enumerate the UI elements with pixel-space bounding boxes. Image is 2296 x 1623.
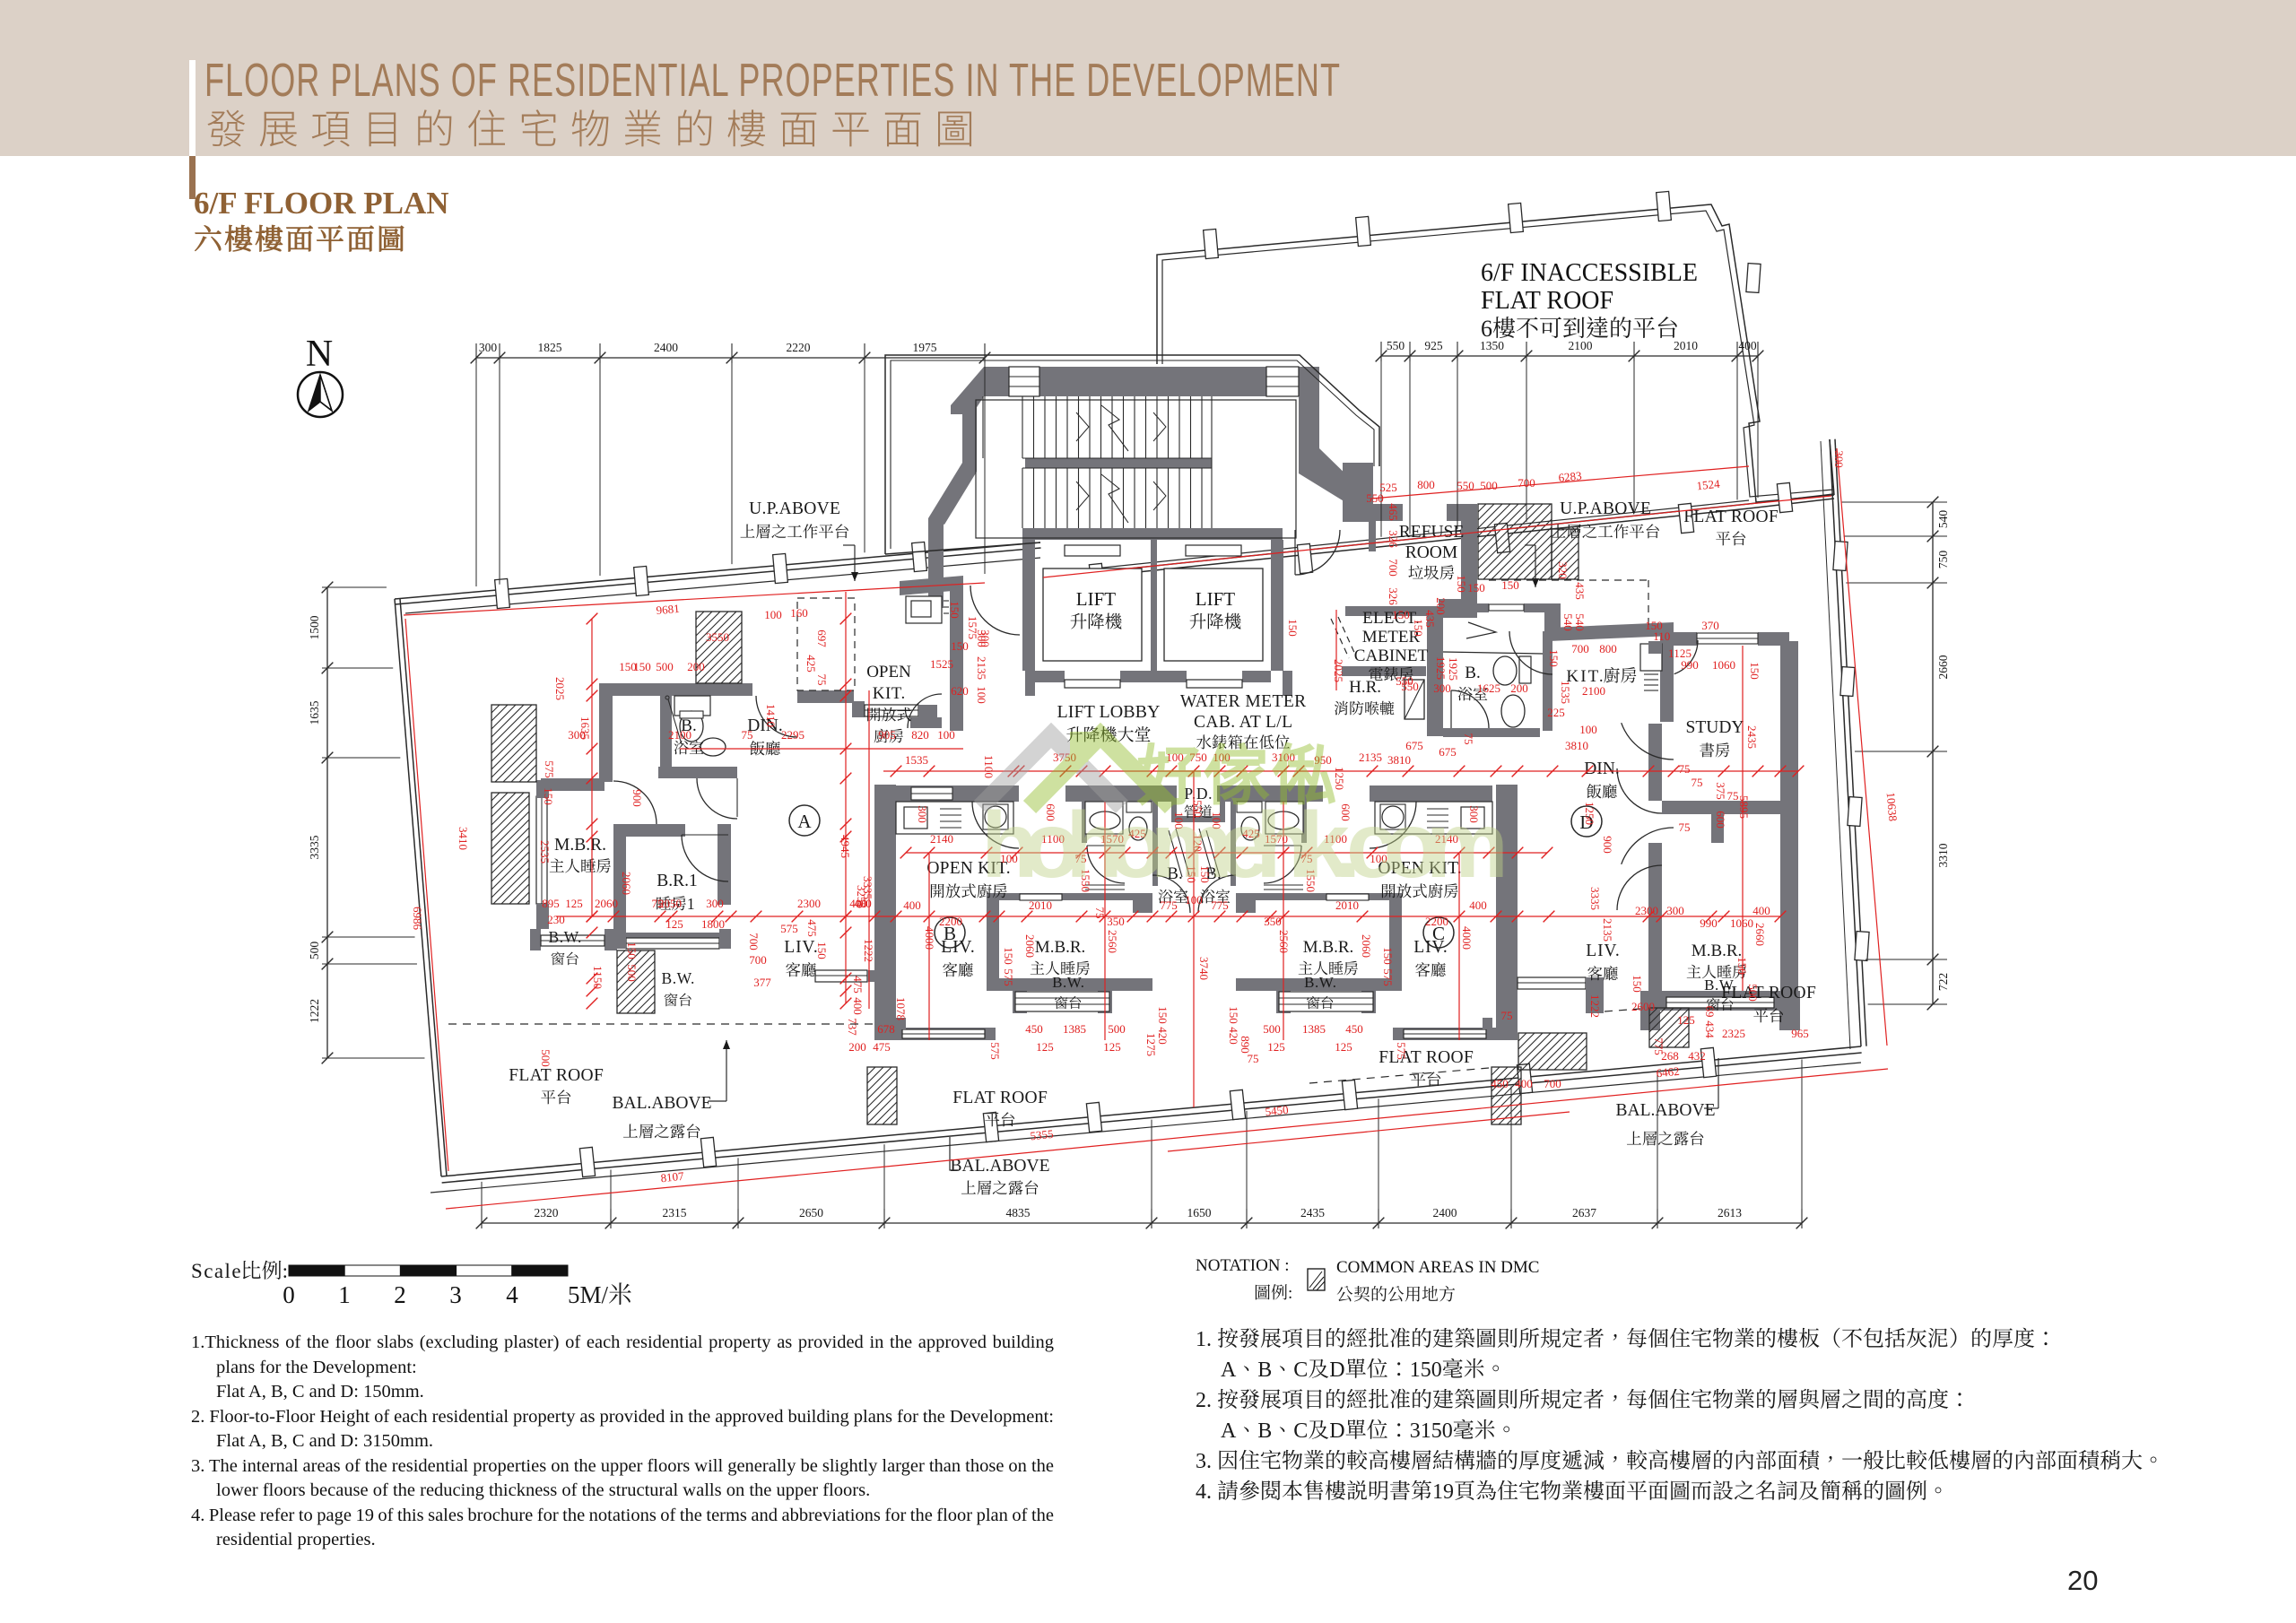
svg-text:550: 550 xyxy=(1457,479,1474,492)
svg-text:B.W.: B.W. xyxy=(662,969,695,987)
svg-text:200: 200 xyxy=(1434,597,1448,615)
svg-text:750: 750 xyxy=(1936,551,1950,569)
svg-text:75: 75 xyxy=(1462,733,1475,745)
svg-text:5895: 5895 xyxy=(1737,795,1751,819)
svg-text:2010: 2010 xyxy=(1674,339,1698,352)
svg-text:300: 300 xyxy=(916,805,929,822)
svg-text:320: 320 xyxy=(1556,561,1570,579)
svg-text:5355: 5355 xyxy=(1030,1127,1054,1143)
svg-text:150: 150 xyxy=(1156,1006,1170,1024)
svg-text:2135: 2135 xyxy=(1359,751,1382,764)
svg-text:575: 575 xyxy=(1395,1042,1408,1060)
svg-text:M.B.R.: M.B.R. xyxy=(554,836,606,855)
svg-text:435: 435 xyxy=(1573,582,1587,600)
svg-text:2: 2 xyxy=(394,1281,406,1308)
svg-text:1.: 1. xyxy=(1196,1328,1212,1351)
svg-text:2025: 2025 xyxy=(1332,659,1345,682)
svg-text:2140: 2140 xyxy=(930,832,953,846)
svg-text:300: 300 xyxy=(479,341,498,354)
svg-text:150: 150 xyxy=(1467,581,1485,595)
svg-text:1222: 1222 xyxy=(308,999,321,1023)
svg-text:D: D xyxy=(1329,1419,1344,1443)
svg-text:75: 75 xyxy=(1727,789,1739,803)
svg-text:890: 890 xyxy=(1239,1036,1252,1054)
svg-text:2025: 2025 xyxy=(553,677,567,700)
svg-text:150: 150 xyxy=(1455,575,1468,593)
svg-text:LIFT: LIFT xyxy=(1076,588,1116,610)
svg-text:B.W.: B.W. xyxy=(1304,974,1336,991)
svg-text:4000: 4000 xyxy=(923,926,936,950)
svg-text:3: 3 xyxy=(449,1281,462,1308)
svg-text:3550: 3550 xyxy=(706,630,729,644)
svg-text:4000: 4000 xyxy=(1460,926,1474,950)
svg-text:2200: 2200 xyxy=(939,915,962,928)
svg-text:400: 400 xyxy=(1515,1077,1533,1090)
svg-text:150: 150 xyxy=(1631,975,1644,993)
svg-text:C: C xyxy=(1293,1358,1308,1382)
svg-text:2100: 2100 xyxy=(668,728,691,742)
svg-text:1625: 1625 xyxy=(1477,681,1500,695)
svg-text:6/F INACCESSIBLE: 6/F INACCESSIBLE xyxy=(1481,259,1698,287)
svg-text:300: 300 xyxy=(568,728,586,742)
svg-text:1100: 1100 xyxy=(982,755,996,778)
svg-text:FLAT ROOF: FLAT ROOF xyxy=(1721,984,1816,1002)
svg-text:1525: 1525 xyxy=(930,657,953,671)
svg-text:1535: 1535 xyxy=(1559,681,1572,704)
svg-text:75: 75 xyxy=(652,897,664,910)
svg-text:450: 450 xyxy=(1491,1077,1509,1090)
svg-text:400: 400 xyxy=(1752,904,1770,917)
svg-text:3.: 3. xyxy=(1196,1450,1212,1473)
svg-text:775: 775 xyxy=(1211,898,1229,912)
svg-text:200: 200 xyxy=(1510,681,1528,695)
svg-text:150: 150 xyxy=(1735,957,1749,975)
svg-text:3335: 3335 xyxy=(1588,887,1602,910)
svg-text:675: 675 xyxy=(1405,739,1423,752)
svg-text:2060: 2060 xyxy=(1360,934,1373,958)
svg-text:5M/: 5M/ xyxy=(568,1281,609,1308)
svg-text:75: 75 xyxy=(815,674,829,686)
svg-text:69: 69 xyxy=(1703,1006,1717,1018)
svg-text:500: 500 xyxy=(1108,1022,1126,1036)
svg-text:620: 620 xyxy=(951,684,969,698)
svg-text:2325: 2325 xyxy=(1722,1027,1745,1040)
svg-text:125: 125 xyxy=(565,897,583,910)
svg-text:6462: 6462 xyxy=(1656,1064,1680,1081)
svg-text:H.R.: H.R. xyxy=(1349,678,1381,697)
svg-text:B.R.1: B.R.1 xyxy=(657,872,698,890)
svg-text:150: 150 xyxy=(542,787,555,805)
svg-text:2560: 2560 xyxy=(1277,930,1291,953)
svg-text:1: 1 xyxy=(687,895,695,913)
svg-text:1500: 1500 xyxy=(308,615,321,639)
svg-text:2300: 2300 xyxy=(797,897,821,910)
svg-text:3150: 3150 xyxy=(1410,1419,1453,1443)
svg-text:6986: 6986 xyxy=(411,907,424,931)
svg-text:100: 100 xyxy=(937,728,955,742)
svg-text:1275: 1275 xyxy=(1144,1033,1158,1056)
svg-text:2660: 2660 xyxy=(1753,923,1767,946)
svg-text:990: 990 xyxy=(1700,916,1718,930)
svg-text:2010: 2010 xyxy=(1029,898,1052,912)
svg-text:hohomehk.com: hohomehk.com xyxy=(981,794,1509,898)
svg-text:150: 150 xyxy=(815,942,829,959)
svg-text:465: 465 xyxy=(1387,503,1400,521)
svg-text:FLAT ROOF: FLAT ROOF xyxy=(1683,508,1779,526)
svg-text:1222: 1222 xyxy=(1588,994,1602,1018)
svg-text:A: A xyxy=(1221,1419,1237,1443)
svg-text:2295: 2295 xyxy=(781,728,804,742)
svg-text:2.: 2. xyxy=(1196,1389,1212,1412)
svg-text:300: 300 xyxy=(1433,681,1451,695)
svg-text:2220: 2220 xyxy=(787,341,811,354)
svg-text:1524: 1524 xyxy=(1696,477,1721,493)
svg-text:CAB. AT L/L: CAB. AT L/L xyxy=(1194,713,1292,732)
svg-text:377: 377 xyxy=(753,976,771,989)
svg-text:150: 150 xyxy=(1748,662,1761,680)
svg-text:800: 800 xyxy=(1599,642,1617,655)
svg-text:1385: 1385 xyxy=(1063,1022,1086,1036)
svg-text:19: 19 xyxy=(1432,1480,1454,1504)
svg-text:500: 500 xyxy=(1746,984,1760,1002)
svg-text:150: 150 xyxy=(1412,619,1425,637)
svg-text:LIV.: LIV. xyxy=(941,938,974,957)
svg-text:0: 0 xyxy=(283,1281,295,1308)
svg-text:10638: 10638 xyxy=(1884,792,1900,822)
svg-text:150: 150 xyxy=(1547,649,1561,667)
svg-text:2400: 2400 xyxy=(1433,1206,1457,1219)
svg-text:2535: 2535 xyxy=(538,840,552,864)
svg-text:722: 722 xyxy=(1936,973,1950,991)
svg-text:6283: 6283 xyxy=(1558,469,1582,485)
svg-text:B: B xyxy=(1257,1419,1272,1443)
svg-text:775: 775 xyxy=(1160,898,1178,912)
svg-text:REFUSE: REFUSE xyxy=(1399,523,1465,542)
svg-text:375: 375 xyxy=(1714,782,1727,800)
svg-text:2100: 2100 xyxy=(1569,339,1593,352)
svg-text:2600: 2600 xyxy=(1631,1000,1655,1013)
svg-text:A: A xyxy=(1221,1358,1237,1382)
svg-text:2135: 2135 xyxy=(1601,918,1614,942)
svg-text:1250: 1250 xyxy=(1583,802,1596,825)
svg-text:1535: 1535 xyxy=(905,753,928,767)
svg-text:700: 700 xyxy=(1544,1077,1561,1090)
svg-text:500: 500 xyxy=(539,1049,552,1067)
svg-text:N: N xyxy=(306,334,333,375)
svg-text:300: 300 xyxy=(706,897,724,910)
svg-text:2060: 2060 xyxy=(1023,934,1037,958)
svg-text:550: 550 xyxy=(1366,491,1384,505)
svg-text:3310: 3310 xyxy=(1936,843,1950,867)
svg-text:697: 697 xyxy=(815,629,829,647)
svg-text:125: 125 xyxy=(1677,1013,1695,1027)
svg-text:350: 350 xyxy=(1264,915,1282,928)
svg-text:1060: 1060 xyxy=(1730,916,1753,930)
svg-text:2660: 2660 xyxy=(1936,655,1950,679)
svg-text:COMMON AREAS IN DMC: COMMON AREAS IN DMC xyxy=(1336,1258,1539,1277)
svg-text:475: 475 xyxy=(851,976,865,994)
svg-text:B.: B. xyxy=(1465,664,1480,682)
svg-text:1222: 1222 xyxy=(862,939,875,962)
svg-text:1150: 1150 xyxy=(591,966,604,989)
svg-text:3810: 3810 xyxy=(1565,739,1588,752)
svg-text:700: 700 xyxy=(1518,476,1535,490)
svg-text:1825: 1825 xyxy=(538,341,562,354)
svg-text::: : xyxy=(1288,1284,1292,1303)
svg-text:KIT.: KIT. xyxy=(873,684,905,703)
svg-text:100: 100 xyxy=(975,686,988,704)
svg-text:2300: 2300 xyxy=(1635,904,1658,917)
svg-text::: : xyxy=(283,1260,288,1282)
svg-text:1: 1 xyxy=(338,1281,351,1308)
svg-text:3740: 3740 xyxy=(1197,957,1211,980)
svg-text:150: 150 xyxy=(948,601,961,619)
svg-text:575: 575 xyxy=(1381,968,1395,986)
svg-text:990: 990 xyxy=(1681,658,1699,672)
svg-text:230: 230 xyxy=(547,913,565,926)
svg-text:200: 200 xyxy=(848,1040,866,1054)
svg-text:500: 500 xyxy=(656,660,674,673)
svg-text:2010: 2010 xyxy=(1335,898,1359,912)
svg-text:2135: 2135 xyxy=(975,656,988,680)
svg-text:6: 6 xyxy=(1481,316,1492,342)
svg-text:150: 150 xyxy=(1410,1358,1442,1382)
svg-text:1650: 1650 xyxy=(1187,1206,1212,1219)
svg-text:75: 75 xyxy=(1093,907,1107,919)
svg-text:NOTATION :: NOTATION : xyxy=(1196,1256,1290,1275)
svg-text:LIV.: LIV. xyxy=(784,938,817,957)
svg-text:2200: 2200 xyxy=(1425,915,1448,928)
svg-text:110: 110 xyxy=(1653,629,1670,643)
svg-text:4: 4 xyxy=(506,1281,518,1308)
svg-text:4835: 4835 xyxy=(1006,1206,1031,1219)
svg-text:700: 700 xyxy=(1571,642,1589,655)
svg-text:ROOM: ROOM xyxy=(1405,543,1458,562)
svg-text:700: 700 xyxy=(1387,559,1400,577)
svg-text:STUDY: STUDY xyxy=(1686,718,1744,737)
svg-text:1925: 1925 xyxy=(1447,657,1460,681)
svg-text:2650: 2650 xyxy=(799,1206,823,1219)
svg-text:BAL.ABOVE: BAL.ABOVE xyxy=(951,1157,1050,1176)
svg-text:LIV.: LIV. xyxy=(1413,938,1447,957)
svg-text:540: 540 xyxy=(1561,613,1575,631)
svg-text:432: 432 xyxy=(1688,1049,1706,1063)
svg-text:150: 150 xyxy=(951,639,969,653)
svg-text:400: 400 xyxy=(854,897,872,910)
svg-text:FLAT ROOF: FLAT ROOF xyxy=(952,1089,1048,1107)
svg-text:B.W.: B.W. xyxy=(1052,974,1084,991)
svg-text:400: 400 xyxy=(1738,339,1757,352)
svg-text:100: 100 xyxy=(1579,723,1597,736)
svg-text:75: 75 xyxy=(1679,820,1691,834)
svg-text:1078: 1078 xyxy=(894,997,908,1020)
svg-text:4945: 4945 xyxy=(839,835,852,858)
svg-text:150: 150 xyxy=(1227,1006,1240,1024)
svg-text:150: 150 xyxy=(633,660,651,673)
svg-text:FLAT ROOF: FLAT ROOF xyxy=(509,1066,604,1085)
svg-text:150: 150 xyxy=(1002,947,1015,965)
svg-text:300: 300 xyxy=(1832,450,1846,468)
svg-text:125: 125 xyxy=(1103,1040,1121,1054)
svg-text:300: 300 xyxy=(1666,904,1684,917)
svg-text:150: 150 xyxy=(1501,578,1519,592)
svg-text:2637: 2637 xyxy=(1572,1206,1596,1219)
svg-text:434: 434 xyxy=(1703,1020,1717,1038)
svg-text:LIV.: LIV. xyxy=(1586,942,1619,960)
svg-text:2060: 2060 xyxy=(620,872,633,895)
svg-text:5450: 5450 xyxy=(1265,1103,1289,1119)
svg-text:100: 100 xyxy=(764,608,782,621)
svg-text:775: 775 xyxy=(1652,1037,1665,1055)
svg-text:500: 500 xyxy=(625,964,639,982)
svg-text:905: 905 xyxy=(878,728,896,742)
svg-text:700: 700 xyxy=(747,933,761,950)
svg-text:B.W.: B.W. xyxy=(549,928,582,946)
svg-text:125: 125 xyxy=(1267,1040,1285,1054)
svg-text:2315: 2315 xyxy=(663,1206,687,1219)
svg-text:150: 150 xyxy=(1381,947,1395,965)
svg-text:75: 75 xyxy=(1692,776,1703,789)
svg-text:200: 200 xyxy=(687,660,705,673)
svg-text:575: 575 xyxy=(1002,968,1015,986)
svg-text:400: 400 xyxy=(851,997,865,1015)
svg-text:75: 75 xyxy=(742,728,753,742)
svg-text:540: 540 xyxy=(1573,613,1587,631)
svg-text:326: 326 xyxy=(1387,530,1400,548)
svg-text:3810: 3810 xyxy=(1387,753,1411,767)
svg-text:150: 150 xyxy=(1286,619,1300,637)
svg-text:475: 475 xyxy=(873,1040,891,1054)
svg-text:400: 400 xyxy=(903,898,920,912)
svg-text:300: 300 xyxy=(978,629,992,647)
svg-text:OPEN: OPEN xyxy=(866,663,911,681)
svg-text:WATER METER: WATER METER xyxy=(1180,692,1306,711)
svg-text:METER: METER xyxy=(1362,628,1421,647)
svg-text:2435: 2435 xyxy=(1300,1206,1325,1219)
svg-text:900: 900 xyxy=(1601,836,1614,854)
svg-text:U.P.ABOVE: U.P.ABOVE xyxy=(749,499,840,518)
svg-text:500: 500 xyxy=(308,942,321,960)
svg-text:575: 575 xyxy=(543,760,556,778)
svg-text:1410: 1410 xyxy=(764,704,778,727)
svg-text:3335: 3335 xyxy=(308,835,321,859)
svg-text:A: A xyxy=(797,811,812,832)
svg-text:550: 550 xyxy=(1387,339,1405,352)
svg-text:2100: 2100 xyxy=(1582,684,1605,698)
svg-text:550: 550 xyxy=(1401,680,1419,693)
svg-text:BAL.ABOVE: BAL.ABOVE xyxy=(613,1094,712,1113)
svg-text:BAL.ABOVE: BAL.ABOVE xyxy=(1616,1101,1716,1120)
svg-text:160: 160 xyxy=(790,606,808,620)
svg-text:600: 600 xyxy=(1714,811,1727,829)
svg-text:2060: 2060 xyxy=(595,897,618,910)
svg-text:678: 678 xyxy=(877,1022,895,1036)
svg-text:500: 500 xyxy=(1263,1022,1281,1036)
svg-text:370: 370 xyxy=(1701,619,1719,632)
svg-text:900: 900 xyxy=(631,789,644,807)
svg-text:700: 700 xyxy=(749,953,767,967)
svg-text:450: 450 xyxy=(1025,1022,1043,1036)
svg-text:540: 540 xyxy=(1936,510,1950,529)
svg-text:1635: 1635 xyxy=(308,700,321,725)
svg-text:965: 965 xyxy=(1791,1027,1809,1040)
svg-text:1385: 1385 xyxy=(1302,1022,1326,1036)
svg-text:925: 925 xyxy=(1424,339,1443,352)
svg-text:2320: 2320 xyxy=(535,1206,559,1219)
svg-text:B: B xyxy=(1257,1358,1272,1382)
svg-text:1975: 1975 xyxy=(913,341,937,354)
svg-text:1800: 1800 xyxy=(701,917,725,931)
svg-text:75: 75 xyxy=(1501,1009,1513,1022)
svg-text:LIFT LOBBY: LIFT LOBBY xyxy=(1057,702,1161,722)
svg-text:FLAT ROOF: FLAT ROOF xyxy=(1378,1048,1474,1067)
svg-text:450: 450 xyxy=(1345,1022,1363,1036)
svg-text:9681: 9681 xyxy=(656,602,680,617)
svg-text:75: 75 xyxy=(1679,762,1691,776)
svg-text:500: 500 xyxy=(1480,479,1498,492)
svg-text:M.B.R.: M.B.R. xyxy=(1692,942,1743,960)
svg-text:3410: 3410 xyxy=(457,827,470,850)
svg-text:75: 75 xyxy=(1248,1052,1259,1065)
svg-text:8107: 8107 xyxy=(660,1169,685,1185)
svg-text:125: 125 xyxy=(665,917,683,931)
svg-text:1925: 1925 xyxy=(1434,656,1448,680)
svg-text:895: 895 xyxy=(542,897,560,910)
svg-text:225: 225 xyxy=(1547,706,1565,719)
svg-text:350: 350 xyxy=(1107,915,1125,928)
svg-text:M.B.R.: M.B.R. xyxy=(1035,938,1086,957)
svg-text:575: 575 xyxy=(988,1042,1002,1060)
svg-text:820: 820 xyxy=(911,728,928,742)
svg-text:125: 125 xyxy=(1036,1040,1054,1054)
svg-text:1250: 1250 xyxy=(1333,767,1346,790)
svg-text:FLAT ROOF: FLAT ROOF xyxy=(1481,287,1613,315)
svg-text:2560: 2560 xyxy=(1106,930,1119,953)
svg-text:326: 326 xyxy=(1387,587,1400,605)
svg-text:2400: 2400 xyxy=(654,341,678,354)
svg-text:1060: 1060 xyxy=(1712,658,1735,672)
svg-text:2613: 2613 xyxy=(1718,1206,1742,1219)
svg-text:675: 675 xyxy=(1439,745,1457,759)
svg-text:2435: 2435 xyxy=(1745,725,1759,749)
svg-text:D: D xyxy=(1329,1358,1344,1382)
svg-text:LIFT: LIFT xyxy=(1196,588,1235,610)
svg-text:420: 420 xyxy=(1227,1027,1240,1045)
svg-text:M.B.R.: M.B.R. xyxy=(1303,938,1354,957)
svg-text:CABINET: CABINET xyxy=(1354,647,1429,665)
svg-text:800: 800 xyxy=(1417,478,1435,491)
svg-text:ELECT.: ELECT. xyxy=(1362,609,1420,628)
svg-text:125: 125 xyxy=(1335,1040,1352,1054)
svg-text:Scale: Scale xyxy=(191,1260,241,1282)
svg-text:150: 150 xyxy=(1392,608,1410,621)
svg-text:4.: 4. xyxy=(1196,1480,1212,1504)
svg-text:400: 400 xyxy=(1469,898,1487,912)
svg-text:425: 425 xyxy=(804,655,818,673)
svg-text:C: C xyxy=(1293,1419,1308,1443)
svg-text:575: 575 xyxy=(780,922,798,935)
svg-text:475: 475 xyxy=(805,919,819,937)
svg-text:150: 150 xyxy=(625,942,639,959)
svg-text:737: 737 xyxy=(846,1018,859,1036)
